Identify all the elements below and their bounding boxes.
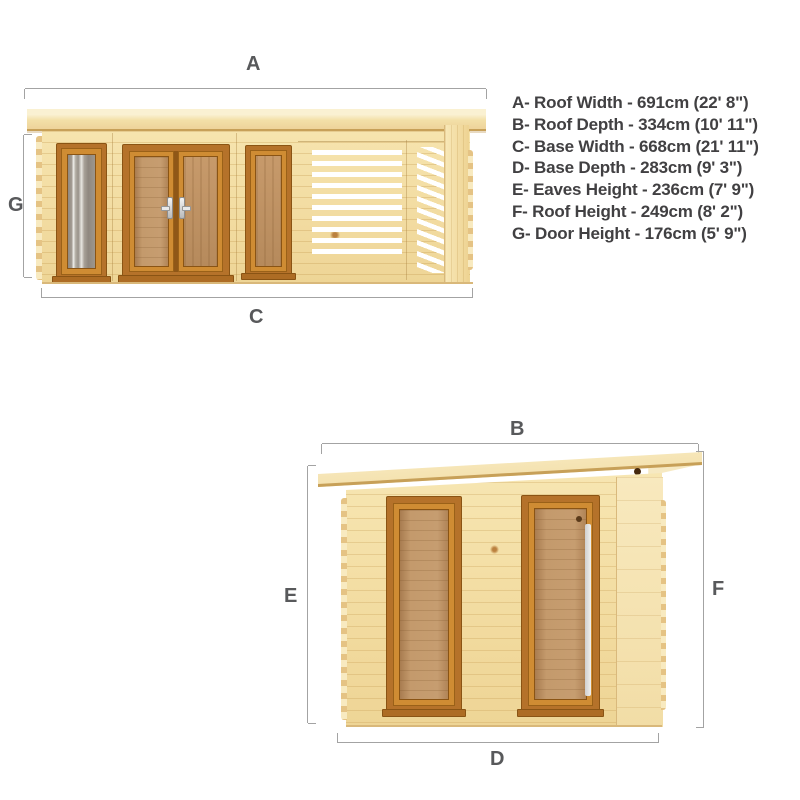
side-window-2-sill <box>517 709 604 717</box>
front-left-window <box>56 143 107 280</box>
side-corner-log-column <box>616 477 663 727</box>
legend-row: D- Base Depth - 283cm (9' 3") <box>512 157 800 179</box>
dim-tick <box>472 288 473 298</box>
side-roof-depth-label: B <box>510 418 524 441</box>
legend-row: C- Base Width - 668cm (21' 11") <box>512 136 800 158</box>
door-leaf-right-glass <box>183 156 218 267</box>
side-roof-depth-dimension-line <box>322 443 698 444</box>
dim-tick <box>24 89 25 99</box>
dim-tick <box>696 727 704 728</box>
front-wall-log-ends-left <box>36 136 42 280</box>
side-eaves-height-label: E <box>284 585 297 608</box>
legend-row: F- Roof Height - 249cm (8' 2") <box>512 201 800 223</box>
dim-tick <box>696 451 704 452</box>
wall-seam <box>236 133 237 281</box>
pergola-beam-seam <box>298 141 468 142</box>
door-handle-pin <box>182 206 191 211</box>
pergola-corner-post <box>444 125 469 283</box>
side-wall-log-ends-left <box>341 498 347 720</box>
side-window-1 <box>386 496 462 713</box>
front-right-window <box>245 145 292 277</box>
front-double-door <box>122 144 230 279</box>
dim-tick <box>308 723 316 724</box>
wall-seam <box>112 133 113 281</box>
front-right-window-sill <box>241 273 296 280</box>
front-roof-width-dimension-line <box>25 88 486 89</box>
pergola-side-slats <box>417 147 444 273</box>
side-ground-line <box>346 725 662 727</box>
side-window-2-glass <box>534 508 587 700</box>
front-base-width-dimension-line <box>42 297 472 298</box>
pergola-corner-seam <box>406 140 407 280</box>
side-window-2 <box>521 495 600 713</box>
dimensions-legend: A- Roof Width - 691cm (22' 8") B- Roof D… <box>512 92 800 245</box>
front-door-height-label: G <box>8 194 24 217</box>
dim-tick <box>658 733 659 743</box>
door-handle-pin <box>161 206 170 211</box>
side-window-1-sill <box>382 709 466 717</box>
side-corner-log-ends <box>661 500 666 710</box>
door-handles <box>167 197 185 219</box>
front-left-window-glass <box>67 154 96 269</box>
dimension-diagram: A <box>0 0 800 800</box>
front-ground-line <box>42 282 473 284</box>
legend-row: E- Eaves Height - 236cm (7' 9") <box>512 179 800 201</box>
dim-tick <box>24 277 32 278</box>
side-base-depth-dimension-line <box>338 742 658 743</box>
dim-tick <box>337 733 338 743</box>
pergola-back-slats <box>312 150 402 258</box>
side-base-depth-label: D <box>490 748 504 771</box>
side-window-2-reflection-streak <box>585 524 591 696</box>
side-eaves-height-dimension-line <box>307 466 308 723</box>
glass-knot-dot <box>576 516 582 522</box>
dim-tick <box>41 288 42 298</box>
pergola-side-slat-stripes <box>417 147 444 273</box>
legend-row: G- Door Height - 176cm (5' 9") <box>512 223 800 245</box>
dim-tick <box>308 465 316 466</box>
front-right-window-glass <box>255 155 282 267</box>
legend-row: B- Roof Depth - 334cm (10' 11") <box>512 114 800 136</box>
roof-knot-dot <box>634 468 641 475</box>
dim-tick <box>24 134 32 135</box>
side-roof-height-label: F <box>712 578 724 601</box>
front-roof <box>27 109 486 131</box>
door-leaf-left-glass <box>134 156 169 267</box>
front-roof-width-label: A <box>246 53 260 76</box>
wood-knot <box>490 545 499 554</box>
dim-tick <box>486 89 487 99</box>
pergola-post-log-ends <box>468 150 473 270</box>
front-base-width-label: C <box>249 306 263 329</box>
legend-row: A- Roof Width - 691cm (22' 8") <box>512 92 800 114</box>
side-window-1-glass <box>399 509 449 700</box>
side-roof-height-dimension-line <box>703 452 704 727</box>
